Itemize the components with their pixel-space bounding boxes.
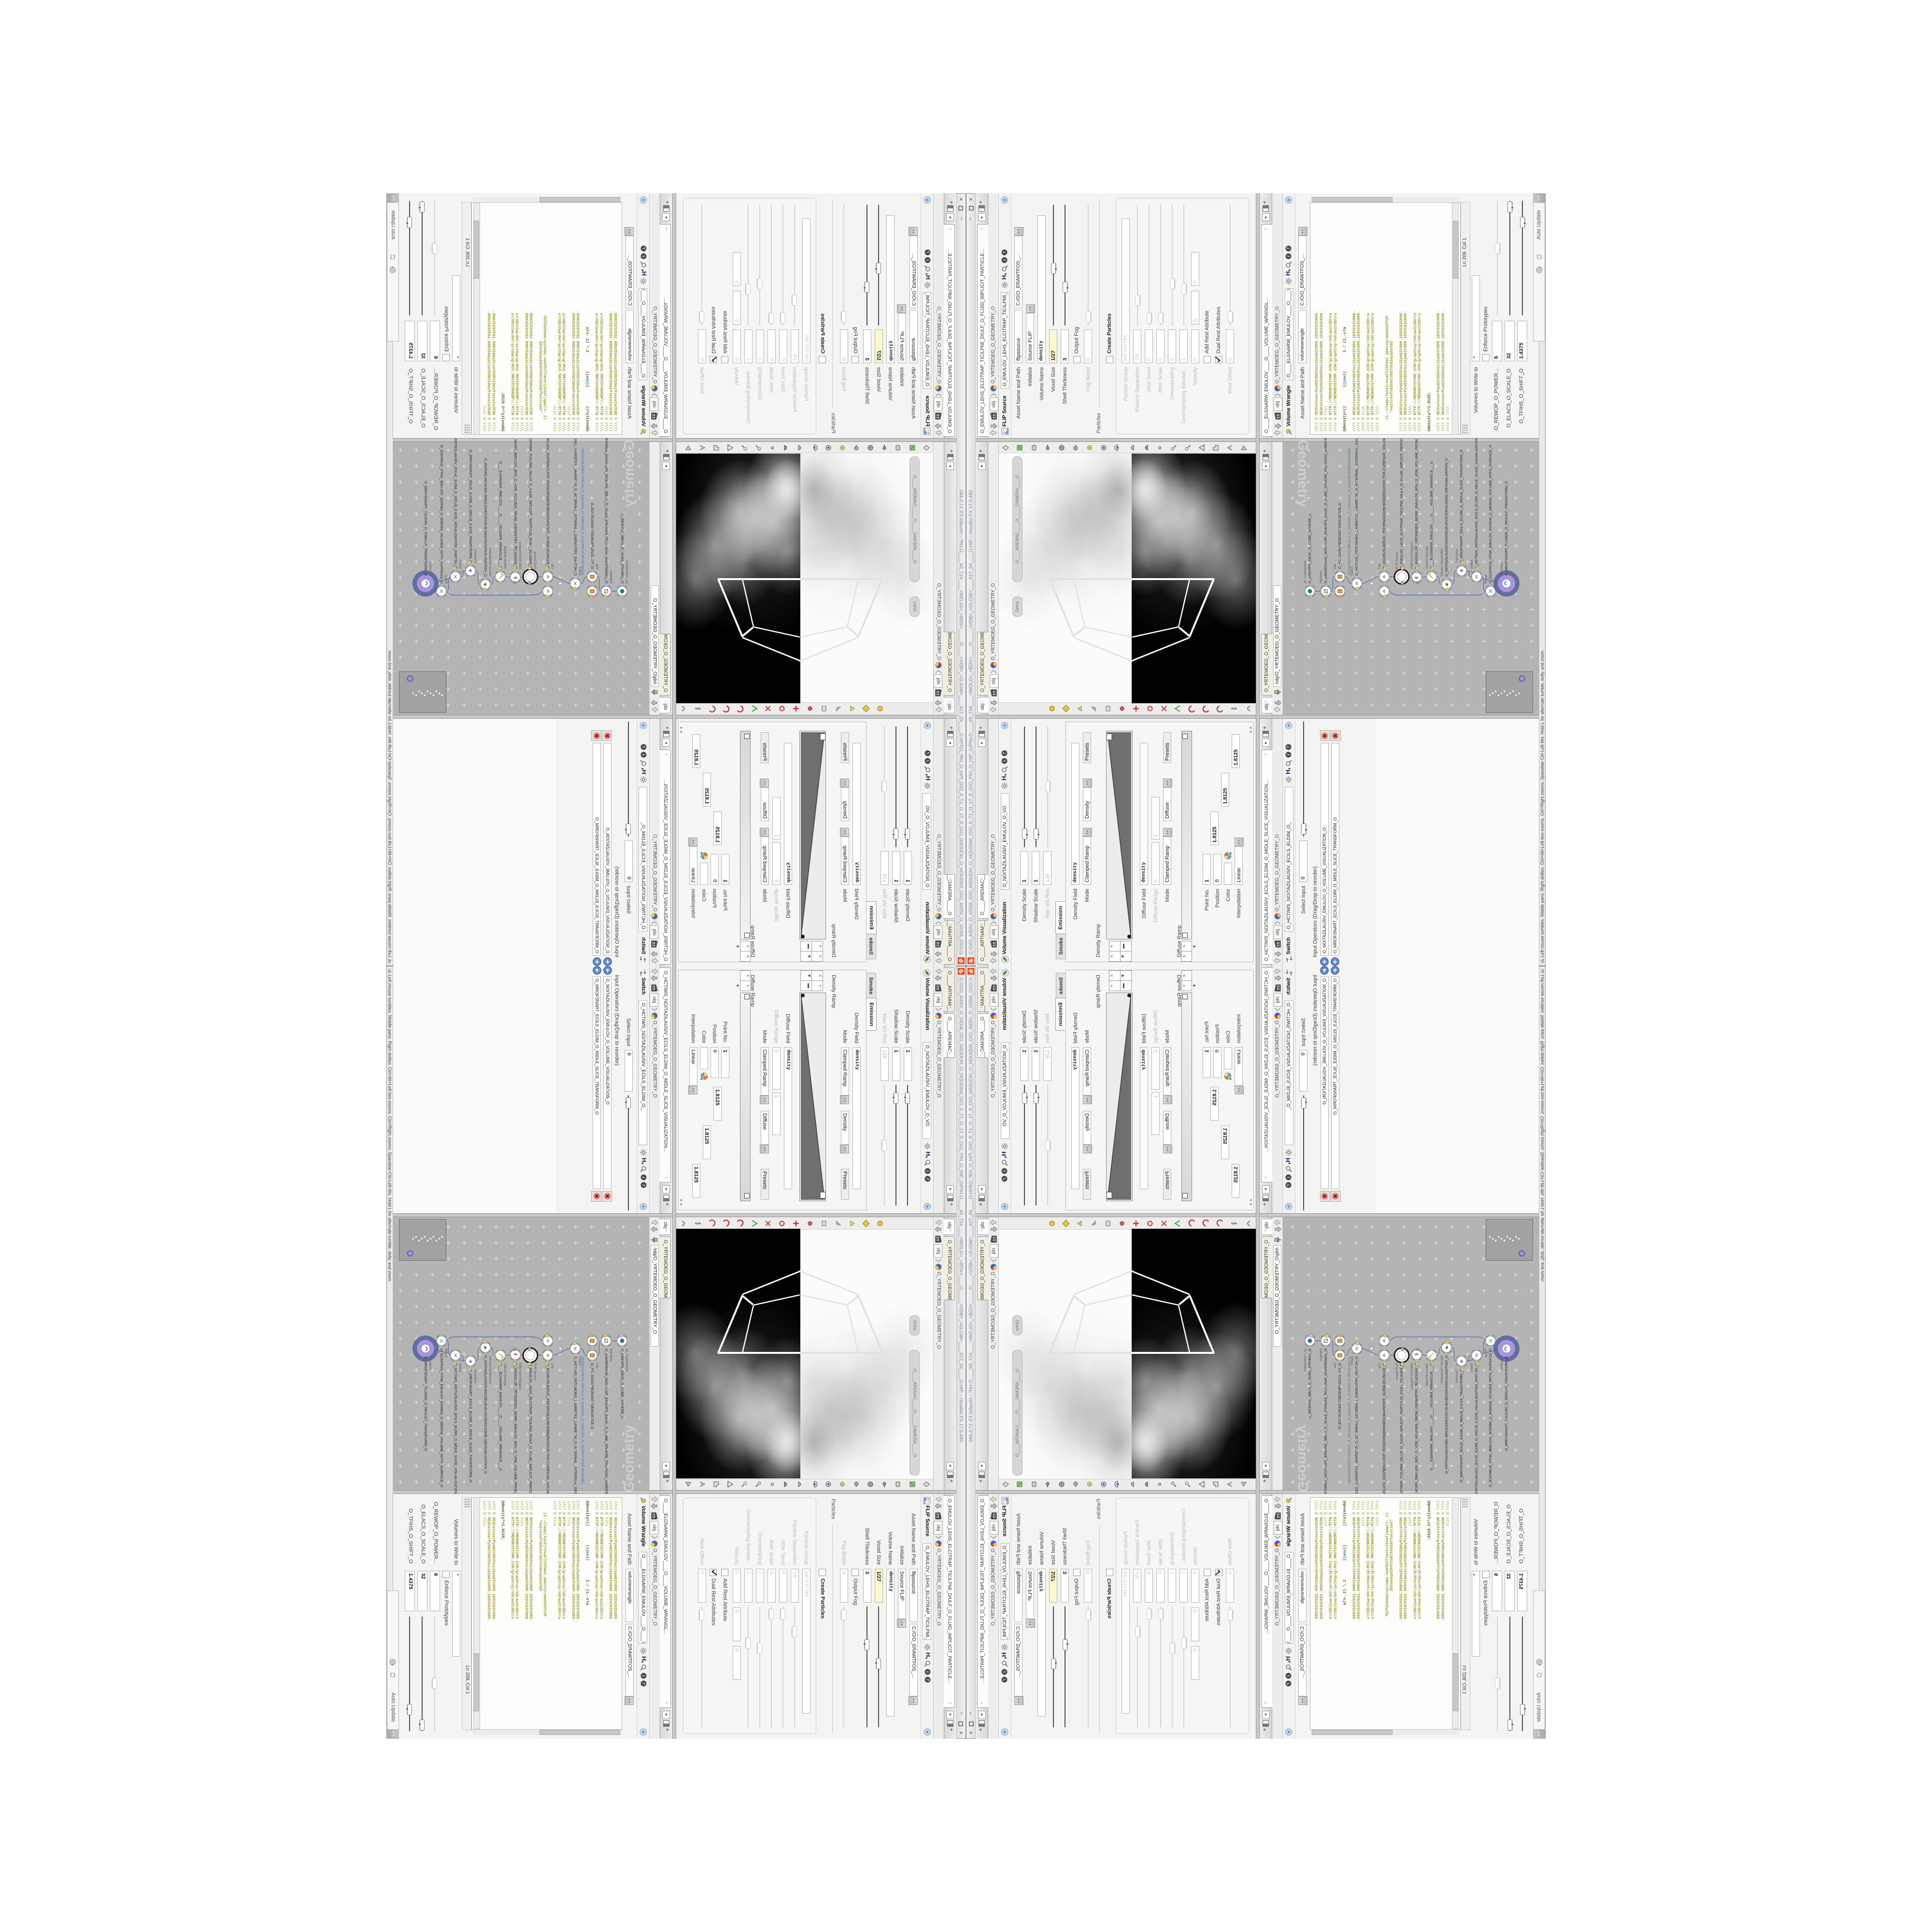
- svg-text:i: i: [641, 256, 646, 257]
- svg-text:i: i: [925, 259, 930, 261]
- svg-text:?: ?: [641, 1682, 646, 1685]
- svg-text:?: ?: [1002, 1678, 1007, 1681]
- svg-text:?: ?: [925, 251, 930, 254]
- svg-text:?: ?: [1286, 247, 1291, 250]
- svg-text:i: i: [1002, 259, 1007, 261]
- svg-text:?: ?: [641, 1184, 646, 1186]
- svg-text:?: ?: [1286, 1682, 1291, 1685]
- svg-text:?: ?: [925, 1678, 930, 1681]
- svg-text:?: ?: [1286, 1184, 1291, 1186]
- svg-text:?: ?: [1002, 251, 1007, 254]
- svg-text:i: i: [641, 754, 646, 755]
- svg-text:i: i: [1286, 256, 1291, 257]
- svg-text:?: ?: [1286, 746, 1291, 748]
- svg-text:?: ?: [641, 247, 646, 250]
- svg-text:i: i: [1286, 754, 1291, 755]
- svg-text:?: ?: [641, 746, 646, 748]
